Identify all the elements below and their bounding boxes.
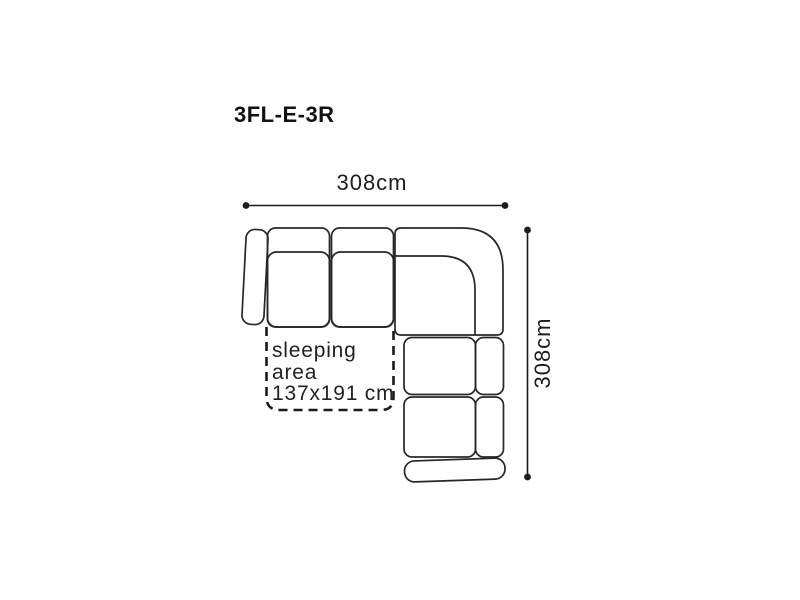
sleeping-area-text-line1: sleeping bbox=[272, 339, 357, 362]
corner-backrest-line bbox=[395, 256, 475, 335]
sleeping-area-text-line3: 137x191 cm bbox=[272, 382, 394, 405]
bottom-armrest-outline bbox=[404, 458, 505, 482]
sleeping-area-text-line2: area bbox=[272, 361, 317, 384]
height-dimension-end-dot bbox=[524, 474, 531, 481]
sofa-dimension-diagram: 3FL-E-3R 308cm 308cm bbox=[0, 0, 800, 600]
chaise-backrest-1 bbox=[476, 338, 504, 395]
width-dimension-end-dot bbox=[502, 202, 509, 209]
height-dimension-start-dot bbox=[524, 227, 531, 234]
width-dimension-start-dot bbox=[243, 202, 250, 209]
seat-section-1-cushion bbox=[268, 252, 330, 327]
product-code-label: 3FL-E-3R bbox=[234, 102, 335, 127]
left-armrest-outline bbox=[242, 229, 269, 325]
height-dimension-label: 308cm bbox=[530, 317, 555, 388]
width-dimension-label: 308cm bbox=[336, 170, 407, 195]
sleeping-area: sleeping area 137x191 cm bbox=[267, 327, 395, 410]
seat-section-2-outline bbox=[332, 228, 394, 327]
corner-section-outline bbox=[395, 228, 503, 335]
sofa-dimension-diagram-page: 3FL-E-3R 308cm 308cm bbox=[0, 0, 800, 600]
chaise-backrest-2 bbox=[476, 397, 504, 457]
chaise-cushion-1 bbox=[404, 338, 476, 395]
height-dimension: 308cm bbox=[524, 227, 555, 481]
seat-section-1-outline bbox=[268, 228, 330, 327]
chaise-cushion-2 bbox=[404, 397, 476, 457]
width-dimension: 308cm bbox=[243, 170, 509, 209]
seat-section-2-cushion bbox=[332, 252, 394, 327]
